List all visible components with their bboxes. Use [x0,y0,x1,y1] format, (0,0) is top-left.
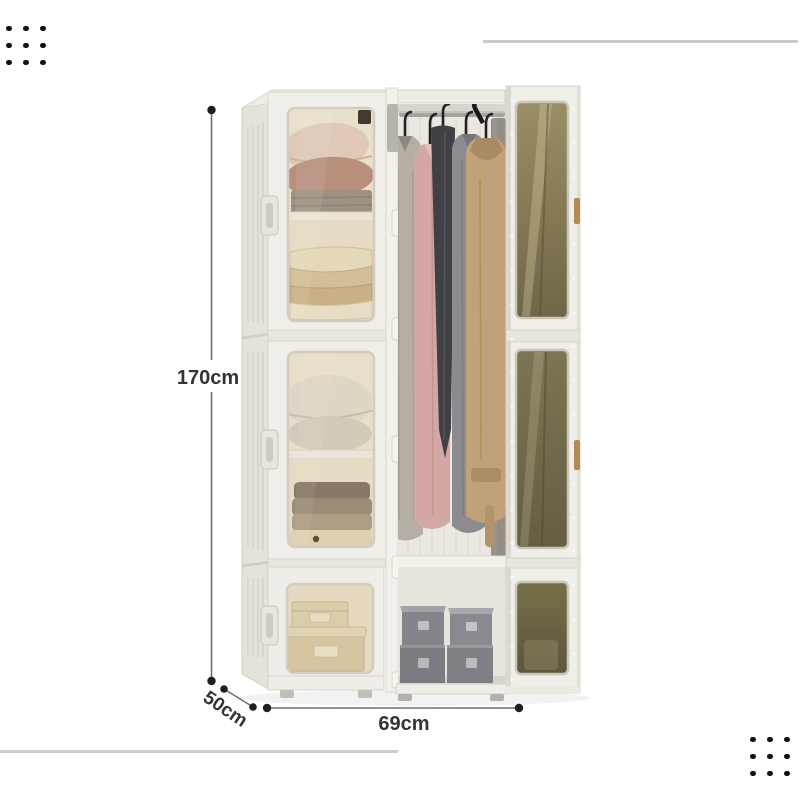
door-handle [261,430,278,469]
foot [280,690,294,698]
door-latch [574,440,580,470]
door-handle [261,196,278,235]
height-dimension: 170cm [177,106,239,685]
product-page: 170cm 50cm 69cm [0,0,800,800]
depth-dimension: 50cm [199,685,257,732]
width-dimension: 69cm [263,704,523,735]
middle-shelf [396,556,508,568]
coat-tan [466,138,506,523]
wardrobe-illustration [242,86,580,701]
height-label: 170cm [177,367,239,389]
side-panel [242,93,270,690]
foot [358,690,372,698]
module-seam [268,330,386,341]
module-seam [268,559,386,567]
hinge-top [387,104,398,152]
wardrobe-product-image: 170cm 50cm 69cm [0,0,800,800]
door-handle [261,606,278,645]
cabinet-module-middle [261,340,386,562]
endpoint-dot [515,704,523,712]
door-latch [574,198,580,224]
endpoint-dot [207,106,215,114]
door-bottom-edge [506,686,580,694]
door-seam [506,558,580,568]
width-label: 69cm [378,713,429,735]
foot [398,694,412,701]
depth-label: 50cm [199,687,251,732]
cabinet-module-top [261,92,386,332]
foot [490,694,504,701]
cabinet-module-bottom [261,566,384,690]
endpoint-dot [220,685,228,693]
endpoint-dot [263,704,271,712]
endpoint-dot [207,677,215,685]
open-door [506,86,580,694]
base-frame-left [268,676,384,690]
door-seam [506,330,580,342]
base-frame-middle [396,684,508,694]
hanging-section [388,94,508,684]
hanging-clothes [388,126,506,548]
endpoint-dot [249,703,257,711]
